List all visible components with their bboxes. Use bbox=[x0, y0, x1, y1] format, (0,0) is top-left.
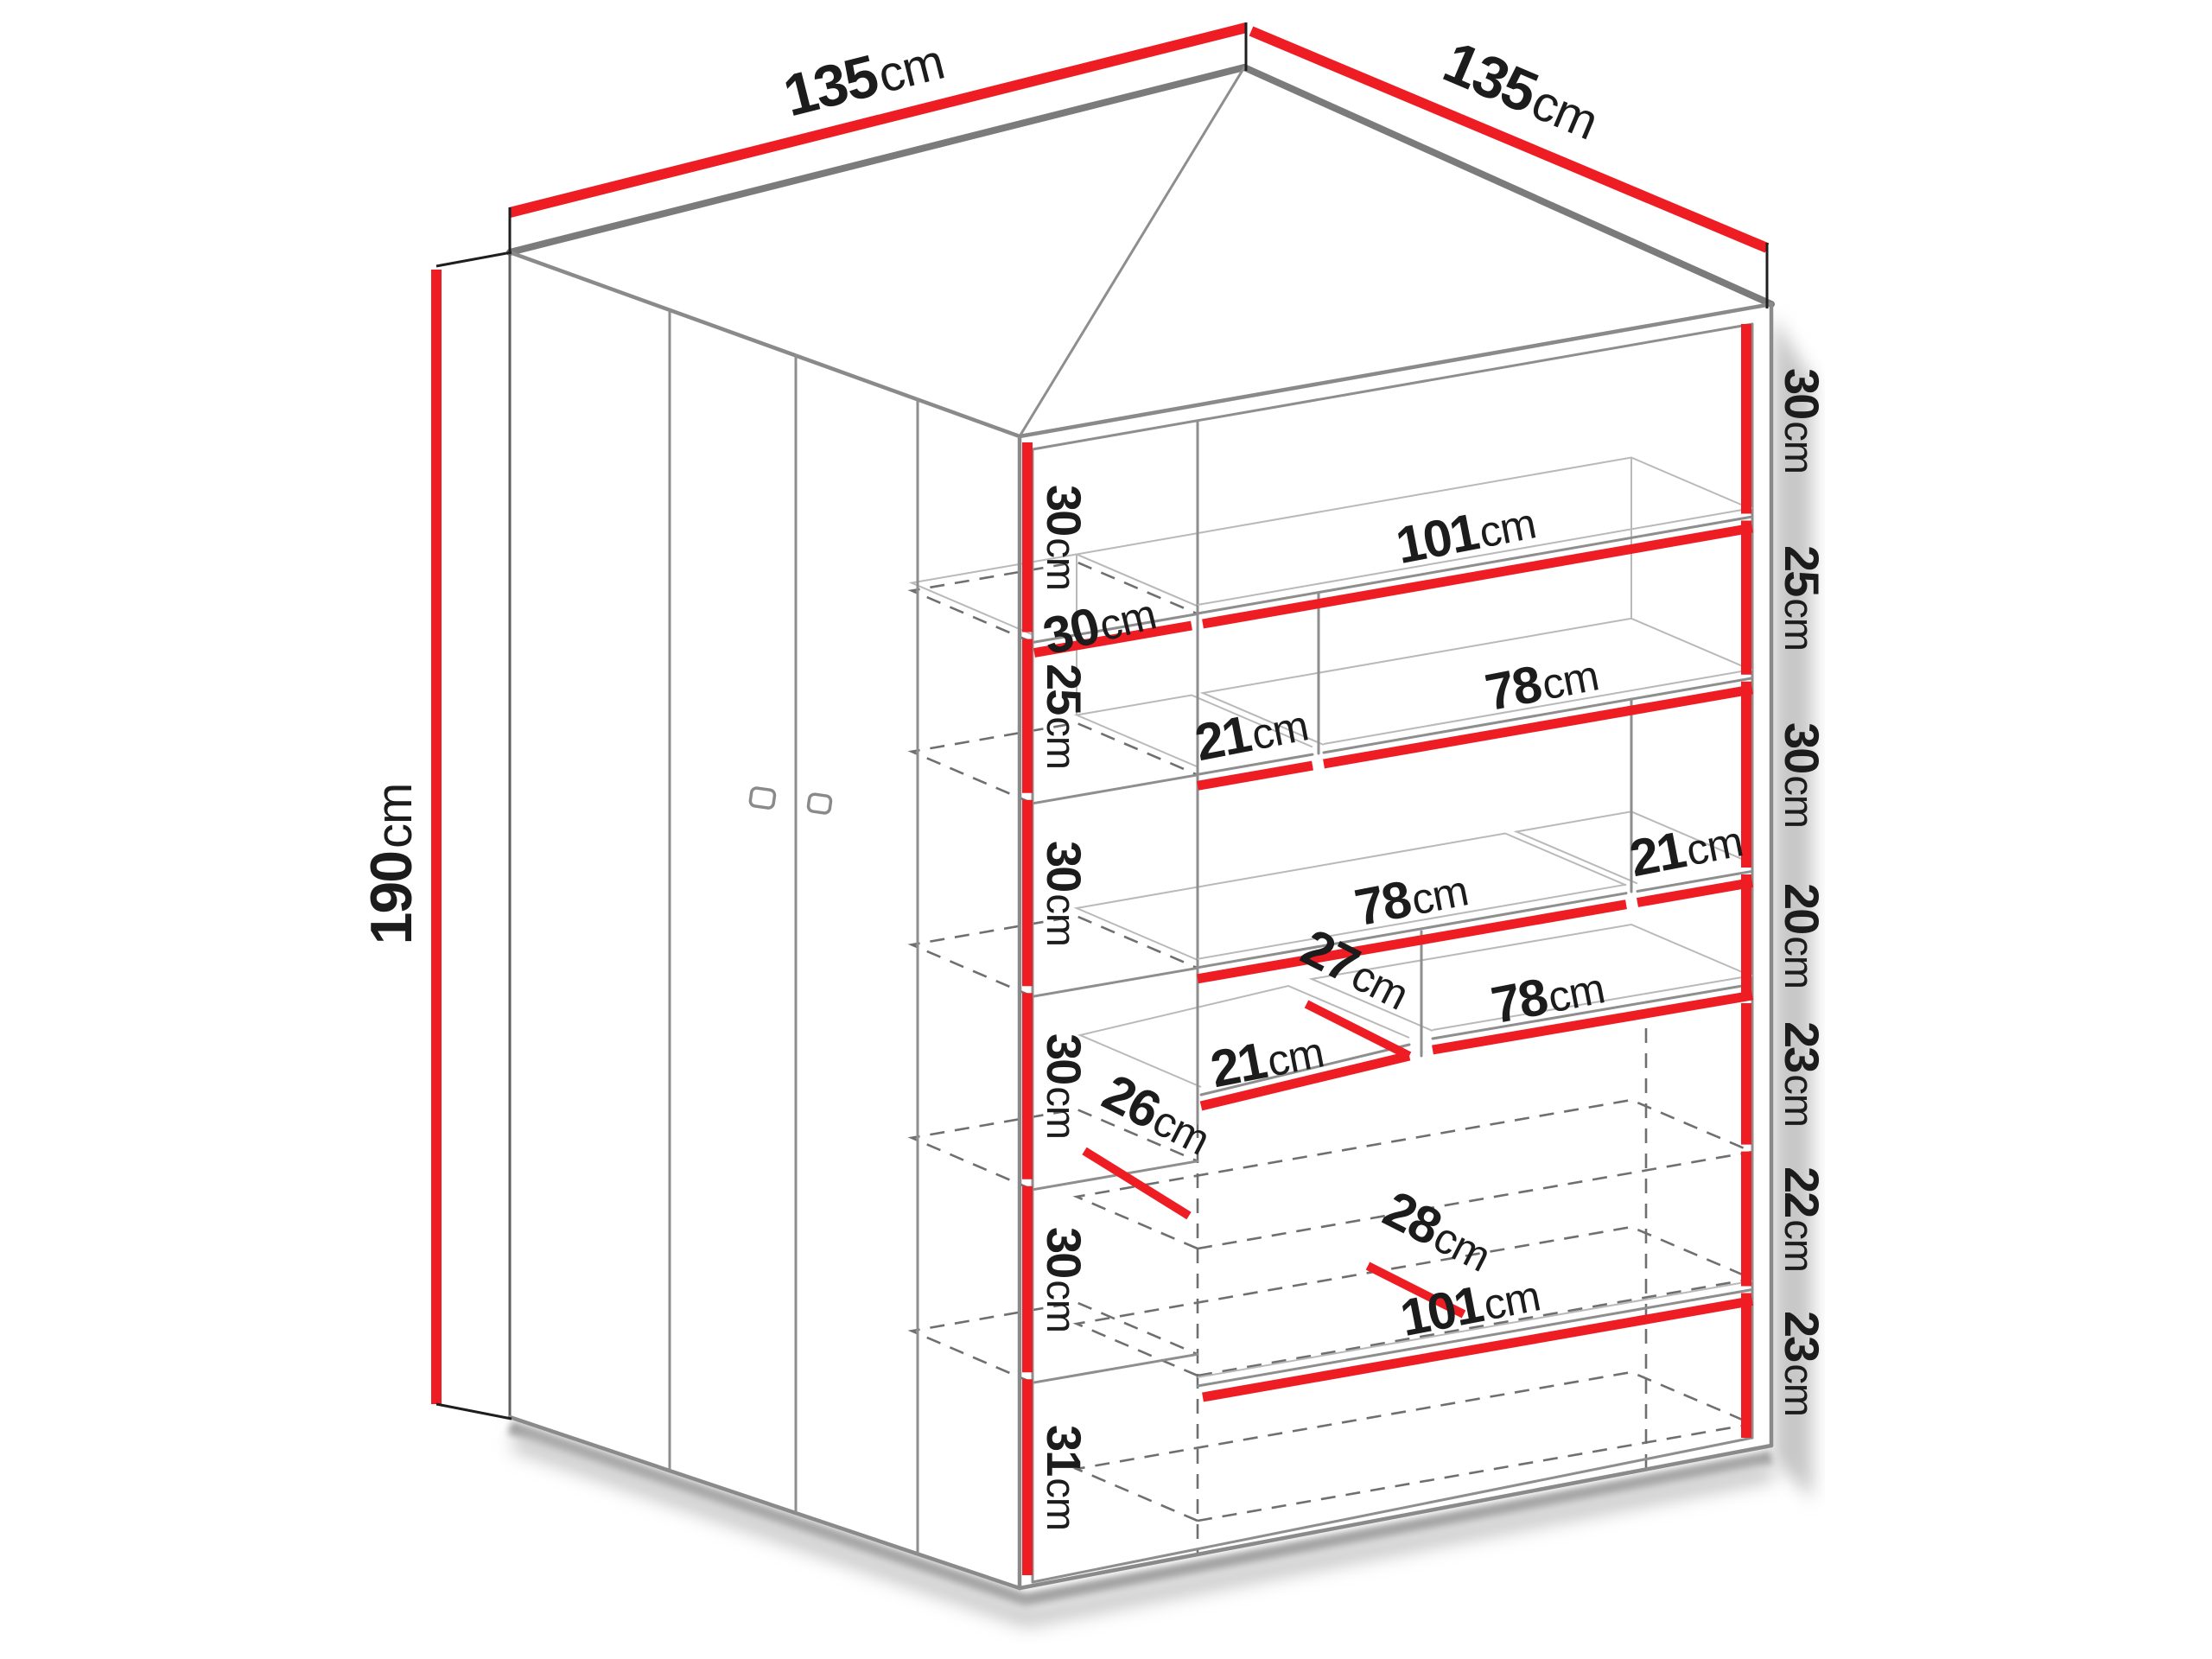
dimension-diagram-page: 135cm 135cm 190cm 30cm 25cm 30cm 30cm 30… bbox=[0, 0, 2212, 1659]
door-handle-left bbox=[750, 787, 776, 809]
dim-label-column-height-4: 30cm bbox=[1037, 1033, 1091, 1139]
dim-label-right-height-1: 30cm bbox=[1775, 368, 1829, 474]
dim-label-right-height-3: 30cm bbox=[1775, 722, 1829, 828]
dim-label-top-right-depth: 135cm bbox=[1434, 29, 1609, 152]
dim-label-right-height-2: 25cm bbox=[1775, 545, 1829, 651]
dim-label-right-height-6: 22cm bbox=[1775, 1166, 1829, 1272]
dim-label-column-height-6: 31cm bbox=[1037, 1425, 1091, 1530]
dim-label-column-height-3: 30cm bbox=[1037, 841, 1091, 946]
dim-label-right-height-4: 20cm bbox=[1775, 883, 1829, 988]
wardrobe-dimension-drawing: 135cm 135cm 190cm 30cm 25cm 30cm 30cm 30… bbox=[0, 0, 2212, 1659]
dim-label-column-height-1: 30cm bbox=[1037, 485, 1091, 590]
dim-label-right-height-5: 23cm bbox=[1775, 1021, 1829, 1127]
left-door-face bbox=[510, 252, 1020, 1588]
cabinet-faces bbox=[510, 67, 1771, 1588]
dim-label-column-height-5: 30cm bbox=[1037, 1227, 1091, 1332]
dim-label-right-height-7: 23cm bbox=[1775, 1311, 1829, 1416]
door-handle-right bbox=[808, 793, 832, 813]
dim-label-left-height: 190cm bbox=[359, 784, 424, 945]
dim-label-column-height-2: 25cm bbox=[1037, 664, 1091, 769]
